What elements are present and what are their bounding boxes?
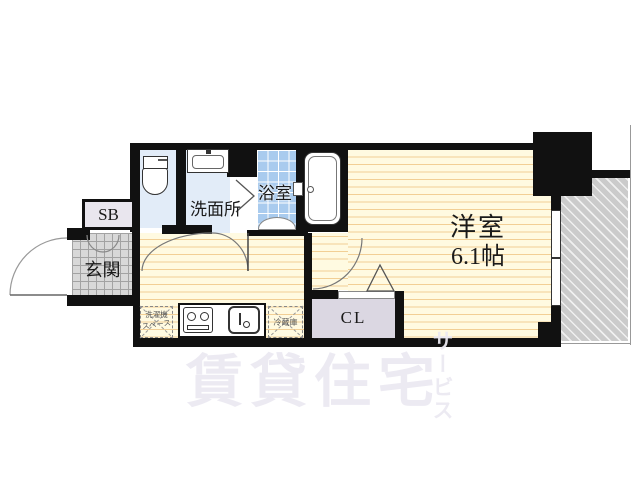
washroom-label: 洗面所 bbox=[190, 195, 241, 220]
shoebox-label: SB bbox=[82, 205, 135, 225]
washer-space-label: 洗濯機 スペース bbox=[140, 310, 173, 330]
watermark-text: 賃貸住宅 bbox=[186, 336, 442, 418]
closet-label: CL bbox=[312, 308, 395, 328]
watermark-vertical-text: サービス bbox=[426, 330, 456, 422]
western-room-size: 6.1帖 bbox=[418, 236, 538, 271]
entrance-label: 玄関 bbox=[72, 256, 133, 282]
refrigerator-label: 冷蔵庫 bbox=[268, 317, 303, 328]
floor-plan: 洋室 6.1帖 浴室 洗面所 SB 玄関 CL 洗濯機 スペース 冷蔵庫 賃貸住… bbox=[0, 0, 640, 480]
bathroom-label: 浴室 bbox=[258, 179, 292, 204]
